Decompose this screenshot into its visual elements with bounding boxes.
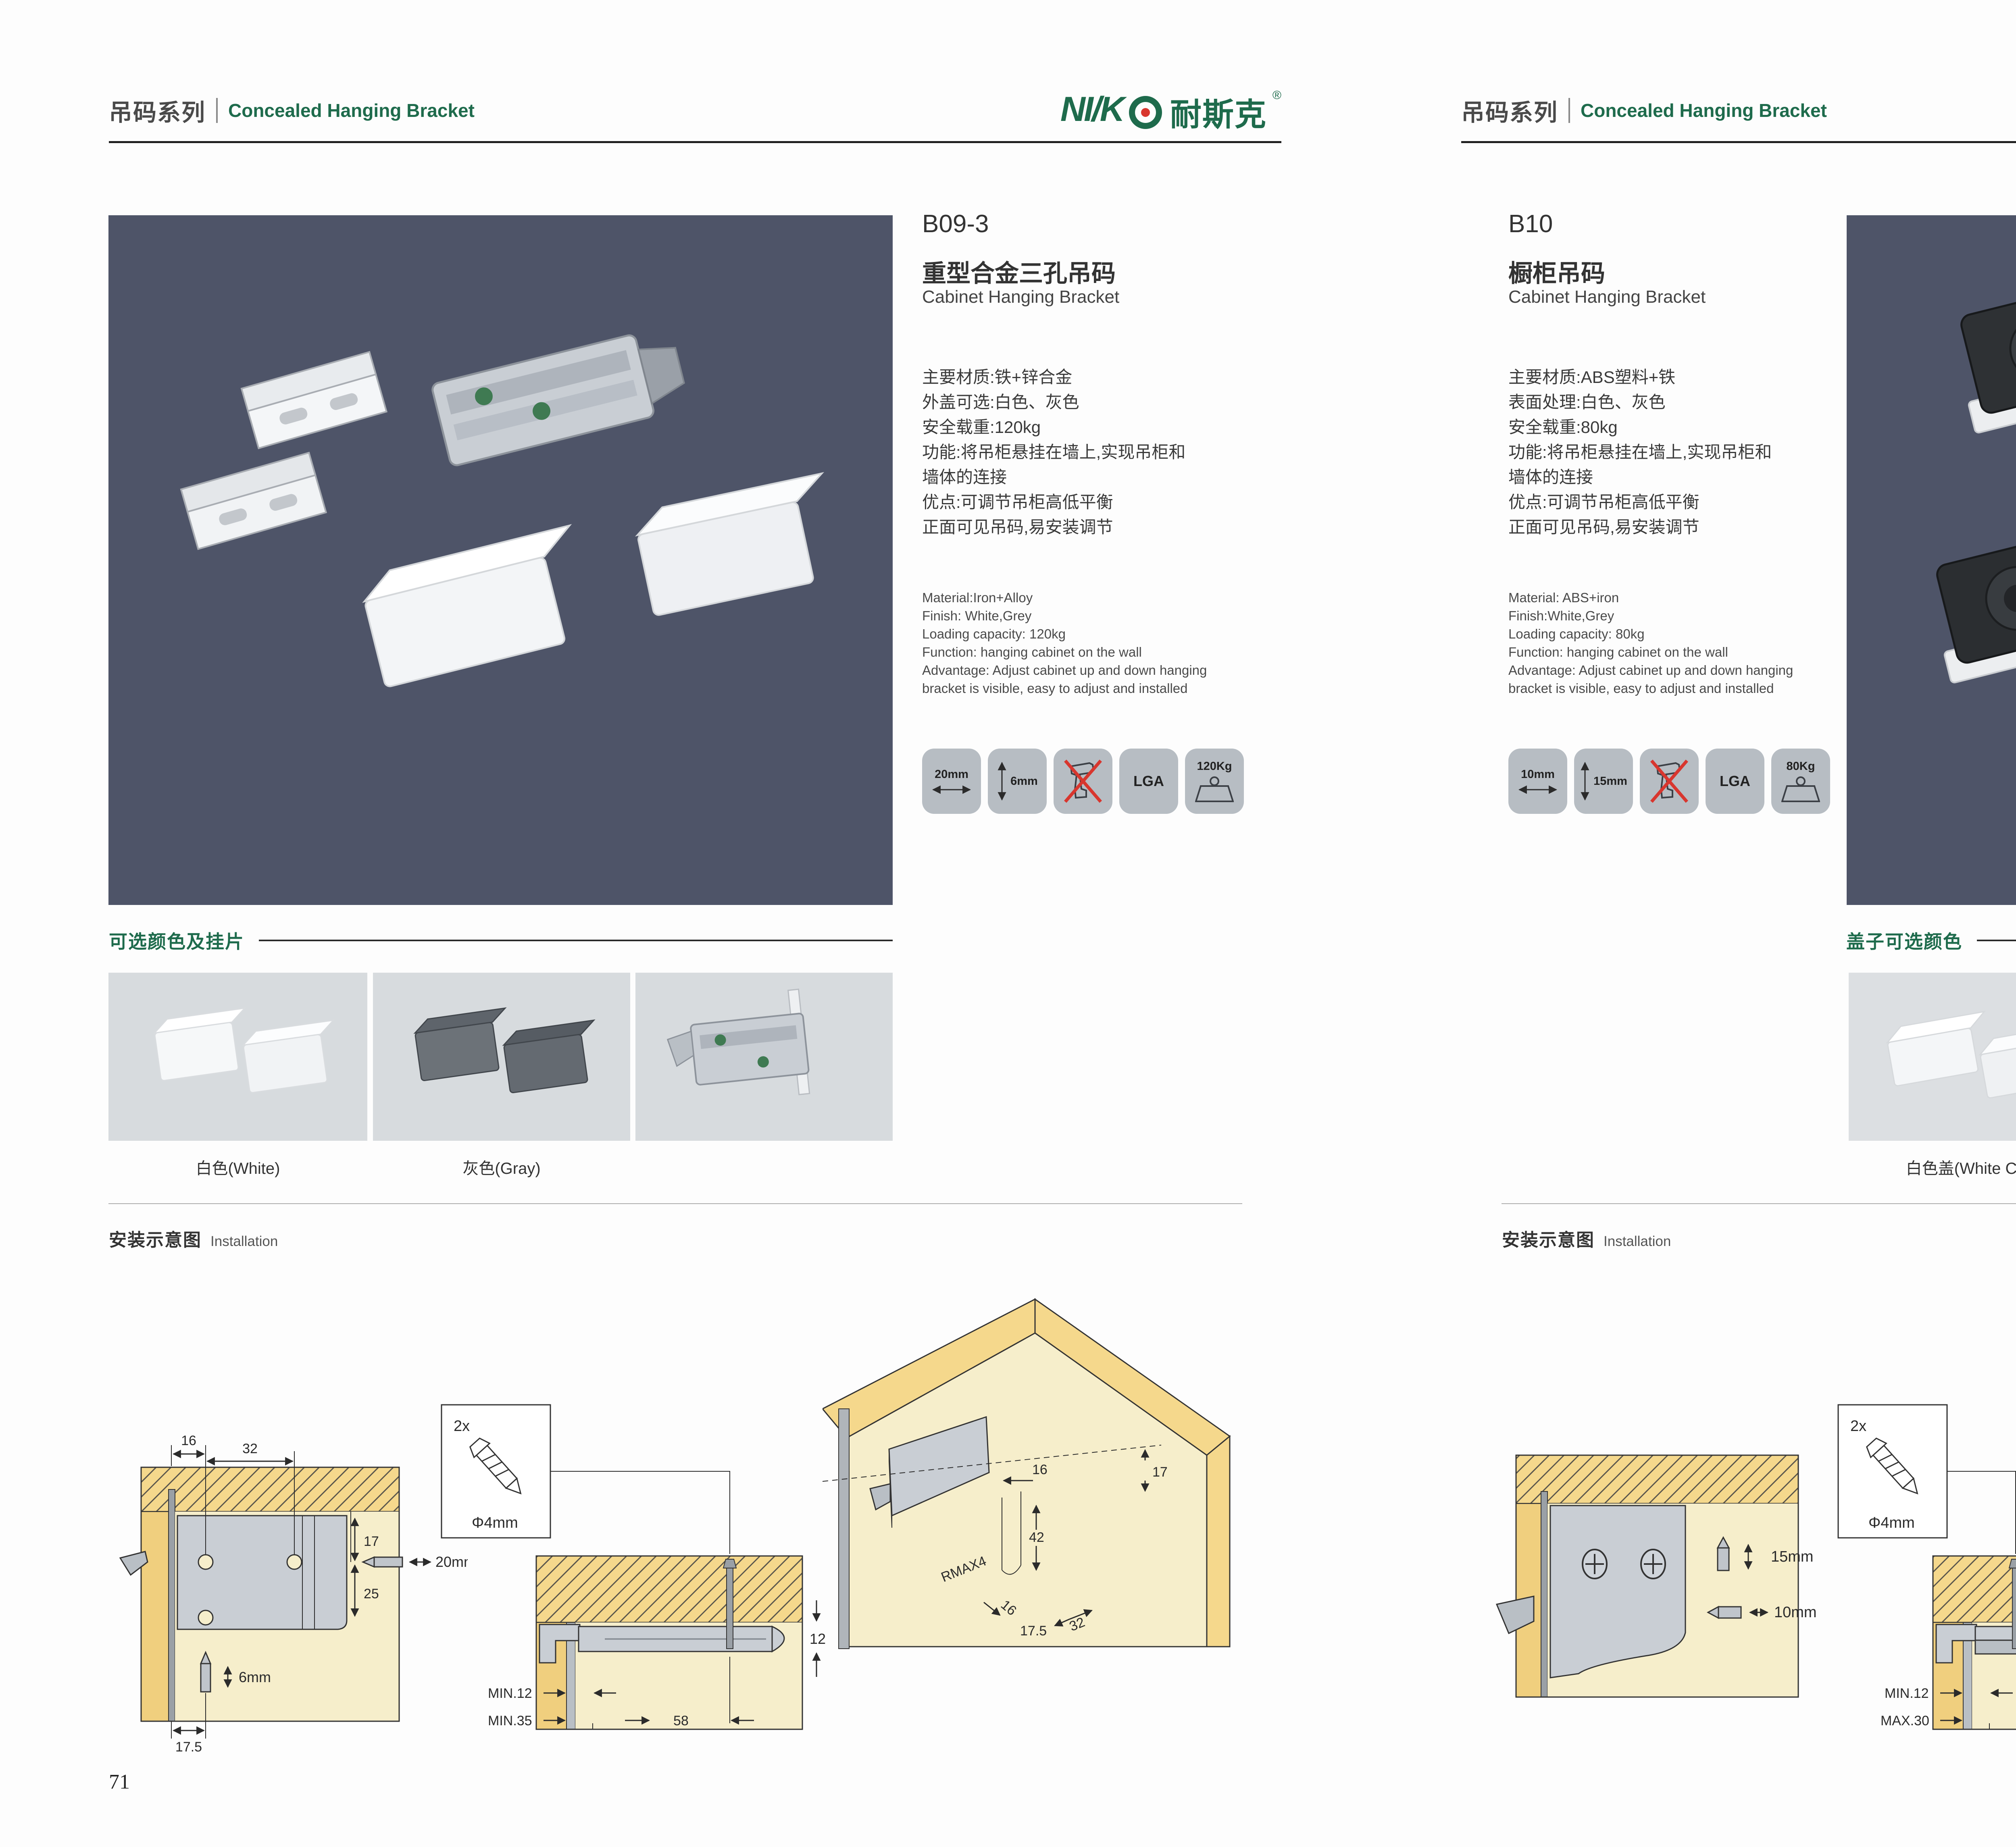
spec-line: Advantage: Adjust cabinet up and down ha… (922, 661, 1207, 679)
diagram1-svg: 15mm 10mm (1492, 1431, 1847, 1729)
colors-title-text: 可选颜色及挂片 (109, 927, 244, 954)
spec-line: 主要材质:ABS塑料+铁 (1508, 365, 1772, 390)
wall-plate-1 (242, 352, 387, 448)
colors-title-text: 盖子可选颜色 (1846, 927, 1962, 954)
logo-o-icon (1129, 96, 1162, 129)
spec-line: 主要材质:铁+锌合金 (922, 365, 1185, 390)
product-name-cn: 橱柜吊码 (1508, 254, 1605, 289)
badge-width: 20mm (922, 749, 981, 814)
dim-label: 58 (673, 1713, 689, 1728)
install-diagram-2: 2x Φ4mm (435, 1399, 831, 1743)
catalog-spread: 吊码系列 Concealed Hanging Bracket NI/K 耐斯克 … (0, 0, 2016, 1847)
screw-dia: Φ4mm (1868, 1514, 1915, 1531)
dim-label: MAX.30 (1881, 1713, 1929, 1728)
colors-section-title: 可选颜色及挂片 (109, 927, 893, 954)
product-code: B09-3 (922, 210, 989, 238)
spec-line: Material: ABS+iron (1508, 589, 1793, 607)
swatch-white-art (108, 973, 367, 1141)
spec-line: 功能:将吊柜悬挂在墙上,实现吊柜和 (1508, 440, 1772, 465)
spec-line: bracket is visible, easy to adjust and i… (1508, 679, 1793, 697)
screw-dia: Φ4mm (472, 1514, 518, 1531)
install-title: 安装示意图 Installation (109, 1225, 278, 1251)
swatch-bracket-art (635, 973, 893, 1141)
spec-line: Function: hanging cabinet on the wall (1508, 643, 1793, 661)
vertical-arrow-icon (997, 760, 1007, 802)
colors-title-rule (259, 940, 893, 941)
diagram2-svg: 2x Φ4mm (435, 1399, 831, 1741)
horizontal-arrow-icon (1517, 784, 1559, 795)
diagram1-svg: 16 32 17 25 20mm 6mm (113, 1429, 468, 1755)
wall-plate-2 (181, 453, 326, 549)
spec-line: Finish:White,Grey (1508, 607, 1793, 625)
dim-label: 17.5 (175, 1739, 202, 1755)
header-rule (1461, 141, 2016, 143)
black-bracket-2 (1923, 502, 2016, 684)
series-title-cn: 吊码系列 (109, 94, 206, 127)
dim-label: 42 (1029, 1530, 1044, 1545)
spec-line: 表面处理:白色、灰色 (1508, 390, 1772, 415)
specs-en: Material:Iron+Alloy Finish: White,Grey L… (922, 589, 1207, 697)
section-divider (108, 1203, 1242, 1204)
dim-label: MIN.12 (1885, 1686, 1929, 1701)
spec-line: 正面可见吊码,易安装调节 (922, 515, 1185, 540)
dim-label: MIN.35 (488, 1713, 532, 1728)
specs-cn: 主要材质:ABS塑料+铁 表面处理:白色、灰色 安全载重:80kg 功能:将吊柜… (1508, 365, 1772, 540)
swatch-gray-art (373, 973, 630, 1141)
product-name-en: Cabinet Hanging Bracket (1508, 287, 1706, 307)
badge-width-label: 20mm (935, 768, 968, 781)
cover-cap-white-2 (633, 473, 844, 616)
weight-icon (1195, 776, 1234, 803)
horizontal-arrow-icon (931, 784, 973, 795)
spec-line: bracket is visible, easy to adjust and i… (922, 679, 1207, 697)
black-bracket-1 (1947, 252, 2016, 434)
series-title-en: Concealed Hanging Bracket (1581, 100, 1827, 121)
spec-line: 优点:可调节吊柜高低平衡 (922, 490, 1185, 515)
spec-line: 墙体的连接 (1508, 465, 1772, 490)
install-title-en: Installation (210, 1233, 278, 1250)
install-diagram-1: 15mm 10mm (1492, 1431, 1847, 1731)
specs-en: Material: ABS+iron Finish:White,Grey Loa… (1508, 589, 1793, 697)
logo-cn: 耐斯克 (1170, 89, 1267, 135)
badge-load-label: 80Kg (1787, 760, 1815, 773)
spec-line: Loading capacity: 80kg (1508, 625, 1793, 643)
install-title-en: Installation (1604, 1233, 1671, 1250)
dim-label: 17.5 (1020, 1623, 1047, 1639)
spec-line: 优点:可调节吊柜高低平衡 (1508, 490, 1772, 515)
cover-cap-white-1 (358, 525, 597, 687)
install-title-cn: 安装示意图 (109, 1225, 202, 1251)
registered-mark: ® (1272, 89, 1281, 102)
brand-logo: NI/K 耐斯克 ® (1060, 89, 1281, 135)
product-code: B10 (1508, 210, 1553, 238)
screw-qty: 2x (1850, 1418, 1866, 1435)
badge-height: 6mm (988, 749, 1047, 814)
install-title-cn: 安装示意图 (1502, 1225, 1595, 1251)
swatch-white (108, 973, 367, 1141)
spec-line: Loading capacity: 120kg (922, 625, 1207, 643)
spec-line: Advantage: Adjust cabinet up and down ha… (1508, 661, 1793, 679)
colors-title-rule (1977, 940, 2016, 941)
badge-cert: LGA (1706, 749, 1764, 814)
colors-section-title: 盖子可选颜色 (1846, 927, 2016, 954)
badge-load-label: 120Kg (1197, 760, 1232, 773)
badge-load: 120Kg (1185, 749, 1244, 814)
badge-cert: LGA (1119, 749, 1178, 814)
badge-width-label: 10mm (1521, 768, 1555, 781)
dim-label: 32 (242, 1441, 258, 1456)
no-drill-icon (1650, 759, 1689, 803)
page-left: 吊码系列 Concealed Hanging Bracket NI/K 耐斯克 … (0, 0, 1352, 1847)
swatch-gray-label: 灰色(Gray) (373, 1155, 630, 1179)
badge-height: 15mm (1574, 749, 1633, 814)
spec-line: 安全载重:120kg (922, 415, 1185, 440)
dim-label: 10mm (1774, 1604, 1817, 1621)
spec-line: Finish: White,Grey (922, 607, 1207, 625)
header-rule (109, 141, 1281, 143)
bracket-body (431, 325, 690, 466)
feature-badges: 10mm 15mm LGA 80Kg (1508, 749, 1830, 814)
header-left: 吊码系列 Concealed Hanging Bracket NI/K 耐斯克 … (109, 94, 1281, 142)
dim-label: 17 (1152, 1464, 1168, 1480)
product-name-cn: 重型合金三孔吊码 (922, 254, 1116, 289)
page-number: 71 (109, 1770, 130, 1794)
screw-qty: 2x (454, 1418, 470, 1435)
swatch-bracket (635, 973, 893, 1141)
spec-line: 墙体的连接 (922, 465, 1185, 490)
diagram3-svg: 17 16 42 RMAX4 16 17.5 32 (823, 1288, 1274, 1760)
badge-height-label: 6mm (1010, 775, 1038, 788)
header-divider (216, 98, 218, 123)
section-divider (1502, 1203, 2016, 1204)
series-title-cn: 吊码系列 (1461, 94, 1558, 127)
install-diagram-1: 16 32 17 25 20mm 6mm (113, 1429, 468, 1758)
page-right: 吊码系列 Concealed Hanging Bracket NI/K 耐斯克 … (1352, 0, 2016, 1847)
swatch-white-label: 白色(White) (108, 1155, 367, 1179)
product-photo-b09-3 (108, 215, 893, 905)
dim-label: 17 (364, 1534, 379, 1549)
weight-icon (1781, 776, 1820, 803)
product-photo-b10 (1847, 215, 2016, 905)
badge-load: 80Kg (1771, 749, 1830, 814)
spec-line: 正面可见吊码,易安装调节 (1508, 515, 1772, 540)
badge-height-label: 15mm (1593, 775, 1627, 788)
install-diagram-2: 2x Φ4mm (1832, 1399, 2016, 1743)
header-divider (1568, 98, 1570, 123)
spec-line: 安全载重:80kg (1508, 415, 1772, 440)
badge-no-drill (1640, 749, 1699, 814)
swatch-white-cap (1849, 973, 2016, 1141)
dim-label: 16 (1032, 1462, 1048, 1477)
spec-line: Material:Iron+Alloy (922, 589, 1207, 607)
dim-label: 15mm (1771, 1548, 1814, 1565)
diagram2-svg: 2x Φ4mm (1832, 1399, 2016, 1741)
product-name-en: Cabinet Hanging Bracket (922, 287, 1119, 307)
logo-latin: NI/K (1060, 89, 1123, 129)
header-right: 吊码系列 Concealed Hanging Bracket NI/K 耐斯克 … (1461, 94, 2016, 142)
dim-label: 6mm (239, 1669, 271, 1685)
specs-cn: 主要材质:铁+锌合金 外盖可选:白色、灰色 安全载重:120kg 功能:将吊柜悬… (922, 365, 1185, 540)
install-title: 安装示意图 Installation (1502, 1225, 1671, 1251)
no-drill-icon (1064, 759, 1102, 803)
spec-line: Function: hanging cabinet on the wall (922, 643, 1207, 661)
photo-art (108, 215, 893, 905)
badge-width: 10mm (1508, 749, 1567, 814)
feature-badges: 20mm 6mm LGA 120Kg (922, 749, 1244, 814)
swatch-gray (373, 973, 630, 1141)
dim-label: 25 (364, 1586, 379, 1602)
badge-cert-label: LGA (1720, 773, 1750, 790)
dim-label: 16 (181, 1433, 196, 1448)
badge-no-drill (1054, 749, 1112, 814)
dim-label: MIN.12 (488, 1686, 532, 1701)
swatch-white-cap-label: 白色盖(White Cap) (1849, 1155, 2016, 1179)
badge-cert-label: LGA (1133, 773, 1164, 790)
vertical-arrow-icon (1580, 760, 1590, 802)
series-title-en: Concealed Hanging Bracket (228, 100, 475, 121)
spec-line: 功能:将吊柜悬挂在墙上,实现吊柜和 (922, 440, 1185, 465)
photo-art (1847, 215, 2016, 905)
swatch-white-cap-art (1849, 973, 2016, 1141)
install-diagram-3: 17 16 42 RMAX4 16 17.5 32 (823, 1288, 1274, 1762)
spec-line: 外盖可选:白色、灰色 (922, 390, 1185, 415)
